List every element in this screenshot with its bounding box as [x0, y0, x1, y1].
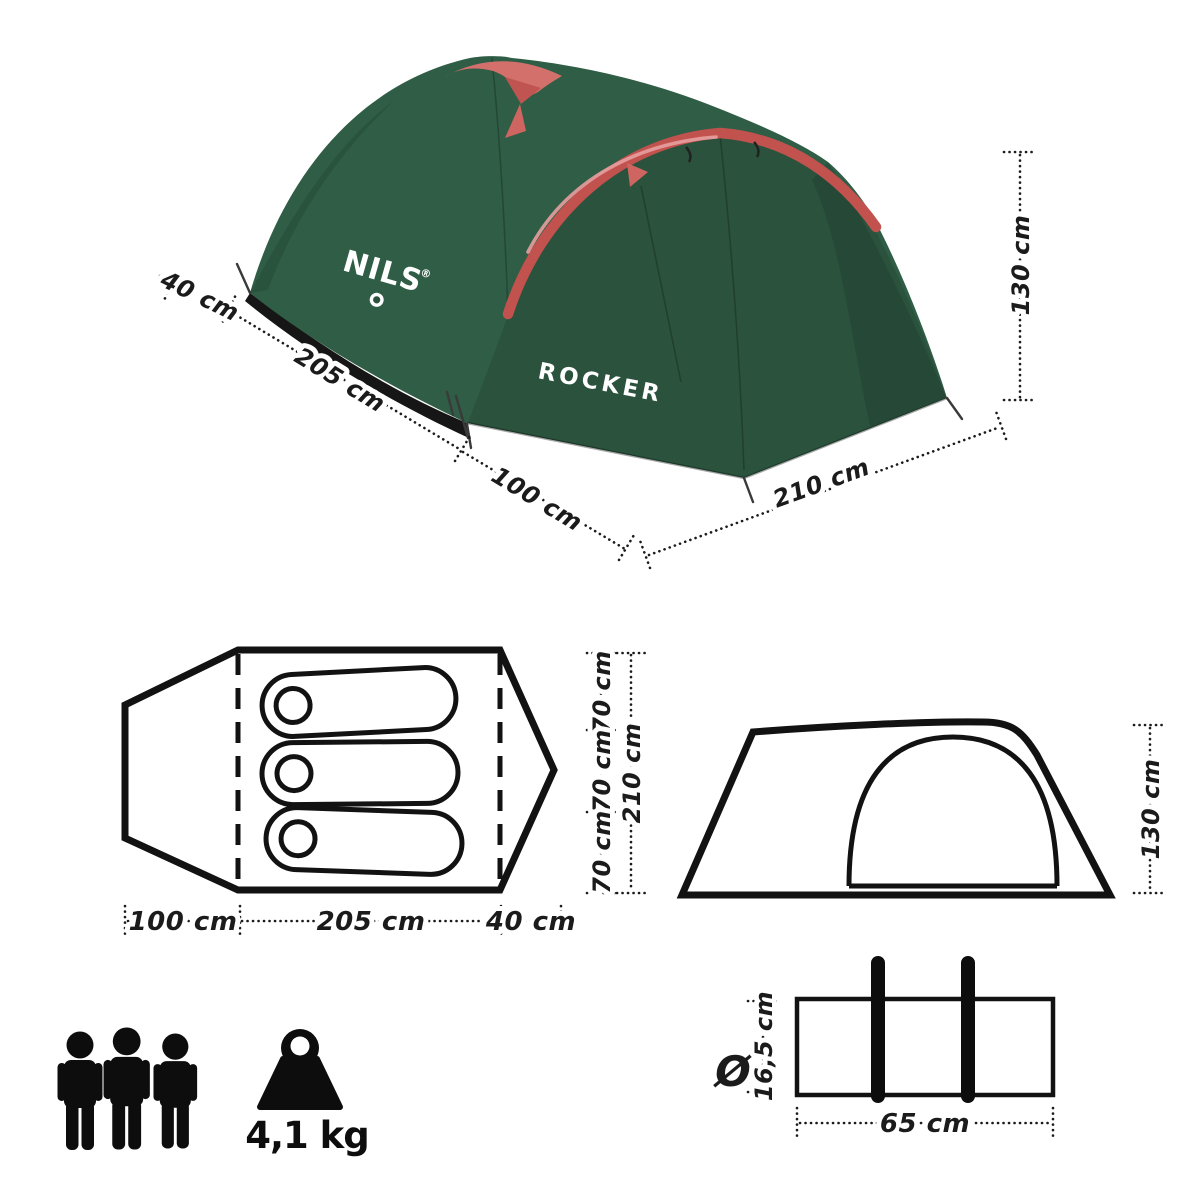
bag-strap	[961, 956, 975, 1103]
dim-tick	[997, 413, 1008, 443]
carry-bag: Ø 16,5 cm 65 cm	[713, 956, 1053, 1139]
stake-right	[947, 398, 962, 419]
plan-dim-210cm-total: 210 cm	[618, 723, 646, 824]
sleeping-pad	[261, 666, 458, 738]
plan-dim-70cm: 70 cm	[588, 729, 616, 813]
diagram-svg: NILS ® ROCKER 40 cm 205 cm 100 cm 210	[0, 0, 1200, 1200]
capacity-weight-specs: 4,1 kg	[58, 1027, 369, 1157]
plan-dim-40cm: 40 cm	[485, 907, 576, 937]
sleeping-pad	[262, 741, 459, 805]
plan-dim-205cm: 205 cm	[317, 907, 426, 937]
dim-tick	[617, 536, 633, 563]
dim-tick	[453, 437, 469, 464]
carry-bag-body	[797, 999, 1053, 1095]
bag-length-dim: 65 cm	[797, 1108, 1053, 1139]
stake-middle	[744, 478, 753, 502]
dim-tick	[641, 542, 652, 572]
side-dim-130cm: 130 cm	[1137, 759, 1165, 860]
person-icon	[58, 1032, 103, 1151]
pad-head-circle	[275, 688, 311, 724]
person-icon	[104, 1027, 150, 1149]
dim-label-40cm: 40 cm	[155, 265, 243, 327]
sleeping-pad	[265, 807, 463, 876]
plan-dim-100cm: 100 cm	[129, 907, 238, 937]
plan-dim-70cm: 70 cm	[588, 650, 616, 734]
plan-dim-70cm: 70 cm	[588, 810, 616, 894]
kettlebell-weight-icon	[260, 1029, 340, 1107]
diameter-symbol: Ø	[713, 1047, 753, 1096]
bag-strap	[871, 956, 885, 1103]
bag-diameter-dim: Ø 16,5 cm	[713, 991, 778, 1101]
pad-head-circle	[277, 756, 311, 790]
dim-label-100cm: 100 cm	[487, 461, 588, 537]
tent-photo-illustration: NILS ® ROCKER 40 cm 205 cm 100 cm 210	[155, 56, 1036, 572]
pad-head-circle	[280, 821, 315, 856]
bag-dim-diameter: 16,5 cm	[750, 991, 778, 1101]
person-icon	[153, 1034, 197, 1149]
floor-plan-bottom-dims: 100 cm 205 cm 40 cm	[125, 906, 576, 937]
weight-value: 4,1 kg	[245, 1114, 369, 1157]
side-view: 130 cm	[682, 722, 1166, 895]
guy-line-left	[237, 264, 250, 293]
floor-plan: 100 cm 205 cm 40 cm 70 cm 70 cm 70 cm 21…	[125, 650, 646, 937]
dim-label-130cm: 130 cm	[1007, 215, 1035, 316]
bag-dim-65cm: 65 cm	[880, 1109, 970, 1139]
side-view-height-dim: 130 cm	[1134, 725, 1166, 893]
product-dimension-sheet: NILS ® ROCKER 40 cm 205 cm 100 cm 210	[0, 0, 1200, 1200]
floor-plan-right-dims: 70 cm 70 cm 70 cm 210 cm	[587, 650, 646, 894]
photo-dim-130: 130 cm	[1004, 152, 1036, 400]
